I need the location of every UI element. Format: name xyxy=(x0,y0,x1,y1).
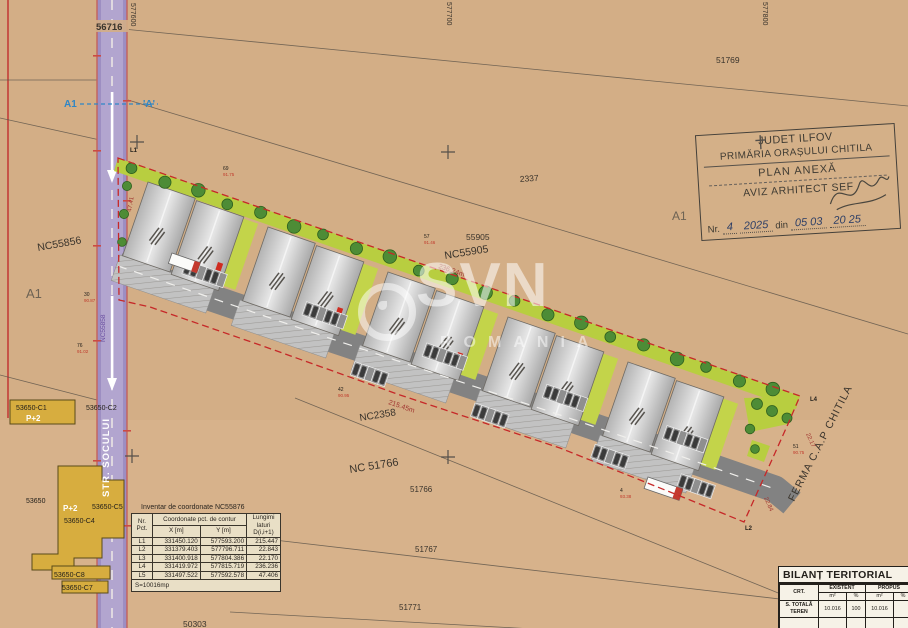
boundary-point-label: L2 xyxy=(745,526,753,532)
tree-icon xyxy=(350,242,362,254)
cell-len: 47.406 xyxy=(247,571,281,580)
tree-icon xyxy=(751,445,760,454)
point-elevation: 90.75 xyxy=(793,450,805,455)
signature-icon xyxy=(827,170,893,214)
bilant-table: CRT. EXISTENT PROPUS m² % m² % S. TOTALĂ… xyxy=(779,584,908,628)
building-53650-C1 xyxy=(10,400,75,424)
cell-y: 577815.719 xyxy=(200,563,246,572)
cell-propus-pct xyxy=(894,601,908,618)
parcel-label: 56716 xyxy=(96,22,122,33)
tree-icon xyxy=(255,206,267,218)
coordinate-table-title: Inventar de coordonate NC55876 xyxy=(141,504,283,511)
cell-len: 236.236 xyxy=(247,563,281,572)
stamp-nr-year: 2025 xyxy=(740,219,773,234)
stamp-cross-doodle xyxy=(754,134,767,151)
col-header-x: X [m] xyxy=(152,525,200,537)
building-height-label: P+2 xyxy=(26,414,41,423)
tree-icon xyxy=(222,199,233,210)
grid-coordinate-label: 577600 xyxy=(129,3,136,26)
col-header-crt: CRT. xyxy=(780,585,819,601)
cell-x: 331379.403 xyxy=(152,546,200,555)
parcel-label: A1 xyxy=(672,209,687,223)
cell-len: 22.843 xyxy=(247,546,281,555)
cell-y: 577796.711 xyxy=(200,546,246,555)
cell-pct: L5 xyxy=(132,571,153,580)
col-header-len: Lungimi laturi D(i,i+1) xyxy=(247,514,281,538)
stamp-nr-label: Nr. xyxy=(707,224,720,236)
approval-stamp: JUDET ILFOV PRIMĂRIA ORAȘULUI CHITILA PL… xyxy=(695,123,901,241)
building-label: 53650-C4 xyxy=(64,518,95,525)
tree-icon xyxy=(542,309,554,321)
stamp-din-label: din xyxy=(775,220,788,232)
tree-icon xyxy=(126,163,137,174)
boundary-point-label: L4 xyxy=(810,397,818,403)
unit-m2: m² xyxy=(866,593,894,601)
coordinate-table-box: Inventar de coordonate NC55876 Nr. Pct. … xyxy=(131,504,283,592)
building-label: 53650 xyxy=(26,498,46,505)
col-header-coord: Coordonate pct. de contur xyxy=(152,514,246,526)
tree-icon xyxy=(782,413,792,423)
cell-x: 331450.120 xyxy=(152,537,200,546)
cell-pct: L4 xyxy=(132,563,153,572)
arrow-shaft xyxy=(111,296,114,378)
cell-x: 331419.972 xyxy=(152,563,200,572)
parcel-label: 2337 xyxy=(519,173,539,184)
street-code-label: NC55858 xyxy=(100,314,107,342)
col-header-y: Y [m] xyxy=(200,525,246,537)
unit-pct: % xyxy=(847,593,866,601)
section-marker-right: 'A' xyxy=(143,99,155,110)
table-header-row: Nr. Pct. Coordonate pct. de contur Lungi… xyxy=(132,514,281,526)
parcel-label: 51771 xyxy=(399,603,422,612)
point-elevation: 91.46 xyxy=(424,240,436,245)
point-elevation: 90.95 xyxy=(338,393,350,398)
parcel-label: 51769 xyxy=(716,55,740,65)
table-header-row: CRT. EXISTENT PROPUS xyxy=(780,585,908,593)
area-total: S=10016mp xyxy=(132,580,281,592)
tree-icon xyxy=(752,399,763,410)
col-header-nr: Nr. Pct. xyxy=(132,514,153,538)
tree-icon xyxy=(767,406,778,417)
table-row xyxy=(780,618,908,628)
point-elevation: 93.38 xyxy=(620,494,632,499)
cell-len: 215.447 xyxy=(247,537,281,546)
tree-icon xyxy=(122,181,131,190)
building-label: 53650-C1 xyxy=(16,405,47,412)
building-label: 53650-C8 xyxy=(54,572,85,579)
unit-m2: m² xyxy=(819,593,847,601)
cell-x: 331497.522 xyxy=(152,571,200,580)
point-elevation: 91.75 xyxy=(223,172,235,177)
site-plan-canvas: A1 'A' 56716 57 xyxy=(0,0,908,628)
point-elevation: 90.87 xyxy=(84,298,96,303)
grid-coordinate-label: 577700 xyxy=(445,2,452,25)
col-header-propus: PROPUS xyxy=(866,585,908,593)
table-row: L3 331400.918 577804.386 22.170 xyxy=(132,554,281,563)
grid-coordinate-label: 577800 xyxy=(761,2,768,25)
table-footer-row: S=10016mp xyxy=(132,580,281,592)
cell-existent-m2: 10.016 xyxy=(819,601,847,618)
parcel-label: 51767 xyxy=(415,545,438,554)
stamp-nr-value: 4 xyxy=(722,221,737,235)
building-label: 53650-C5 xyxy=(92,504,123,511)
cell-propus-m2: 10.016 xyxy=(866,601,894,618)
building-label: 53650-C2 xyxy=(86,405,117,412)
table-row: L2 331379.403 577796.711 22.843 xyxy=(132,546,281,555)
tree-icon xyxy=(192,183,206,197)
boundary-point-label: L1 xyxy=(130,148,138,154)
parcel-label: 51766 xyxy=(410,485,433,494)
coordinate-table: Nr. Pct. Coordonate pct. de contur Lungi… xyxy=(131,513,281,592)
table-row: L1 331450.120 577593.200 215.447 xyxy=(132,537,281,546)
tree-icon xyxy=(159,176,171,188)
stamp-date-year: 20 25 xyxy=(829,213,865,228)
point-elevation: 91.02 xyxy=(77,349,89,354)
cell-y: 577592.578 xyxy=(200,571,246,580)
tree-icon xyxy=(413,265,424,276)
table-row: L5 331497.522 577592.578 47.406 xyxy=(132,571,281,580)
tree-icon xyxy=(383,250,397,264)
table-row: S. TOTALĂ TEREN 10.016 100 10.016 xyxy=(780,601,908,618)
tree-icon xyxy=(605,331,616,342)
cell-x: 331400.918 xyxy=(152,554,200,563)
tree-icon xyxy=(479,286,493,300)
row-label: S. TOTALĂ TEREN xyxy=(780,601,819,618)
cell-pct: L3 xyxy=(132,554,153,563)
cell-existent-pct: 100 xyxy=(847,601,866,618)
cell-pct: L1 xyxy=(132,537,153,546)
table-row: L4 331419.972 577815.719 236.236 xyxy=(132,563,281,572)
parcel-label: A1 xyxy=(26,286,42,301)
parcel-label: 50303 xyxy=(183,619,207,628)
tree-icon xyxy=(745,424,755,434)
bilant-title: BILANȚ TERITORIAL xyxy=(779,567,908,584)
cell-y: 577593.200 xyxy=(200,537,246,546)
building-label: 53650-C7 xyxy=(62,585,93,592)
parcel-label: 55905 xyxy=(466,232,490,242)
cell-y: 577804.386 xyxy=(200,554,246,563)
stamp-date: 05 03 xyxy=(791,215,827,230)
bilant-teritorial-box: BILANȚ TERITORIAL CRT. EXISTENT PROPUS m… xyxy=(778,566,908,628)
street-name-label: STR. SOCULUI xyxy=(101,418,112,497)
unit-pct: % xyxy=(894,593,908,601)
cell-pct: L2 xyxy=(132,546,153,555)
cell-len: 22.170 xyxy=(247,554,281,563)
section-marker-left: A1 xyxy=(64,99,77,110)
building-height-label: P+2 xyxy=(63,504,78,513)
col-header-existent: EXISTENT xyxy=(819,585,866,593)
